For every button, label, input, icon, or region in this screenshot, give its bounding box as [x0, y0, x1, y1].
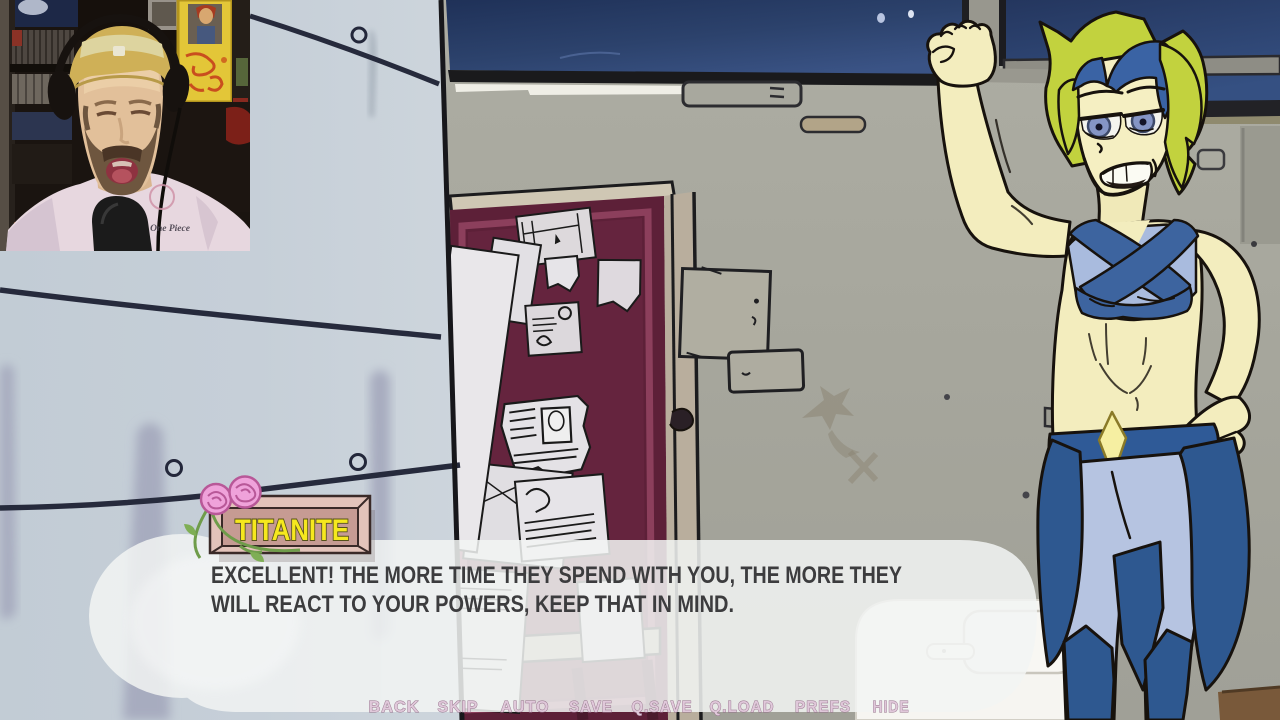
svg-text:TITANITE: TITANITE	[235, 514, 349, 547]
svg-text:SKIP: SKIP	[438, 699, 479, 716]
svg-text:HIDE: HIDE	[873, 699, 910, 716]
svg-text:BACK: BACK	[369, 699, 420, 716]
svg-text:AUTO: AUTO	[501, 699, 550, 716]
svg-text:Q.SAVE: Q.SAVE	[632, 699, 693, 716]
svg-text:WILL REACT TO YOUR POWERS, KEE: WILL REACT TO YOUR POWERS, KEEP THAT IN …	[211, 591, 734, 618]
svg-text:EXCELLENT! THE MORE TIME THEY: EXCELLENT! THE MORE TIME THEY SPEND WITH…	[211, 562, 902, 589]
svg-text:One Piece: One Piece	[150, 224, 191, 234]
svg-text:Q.LOAD: Q.LOAD	[710, 699, 775, 716]
svg-text:SAVE: SAVE	[569, 699, 613, 716]
svg-text:PREFS: PREFS	[795, 699, 851, 716]
